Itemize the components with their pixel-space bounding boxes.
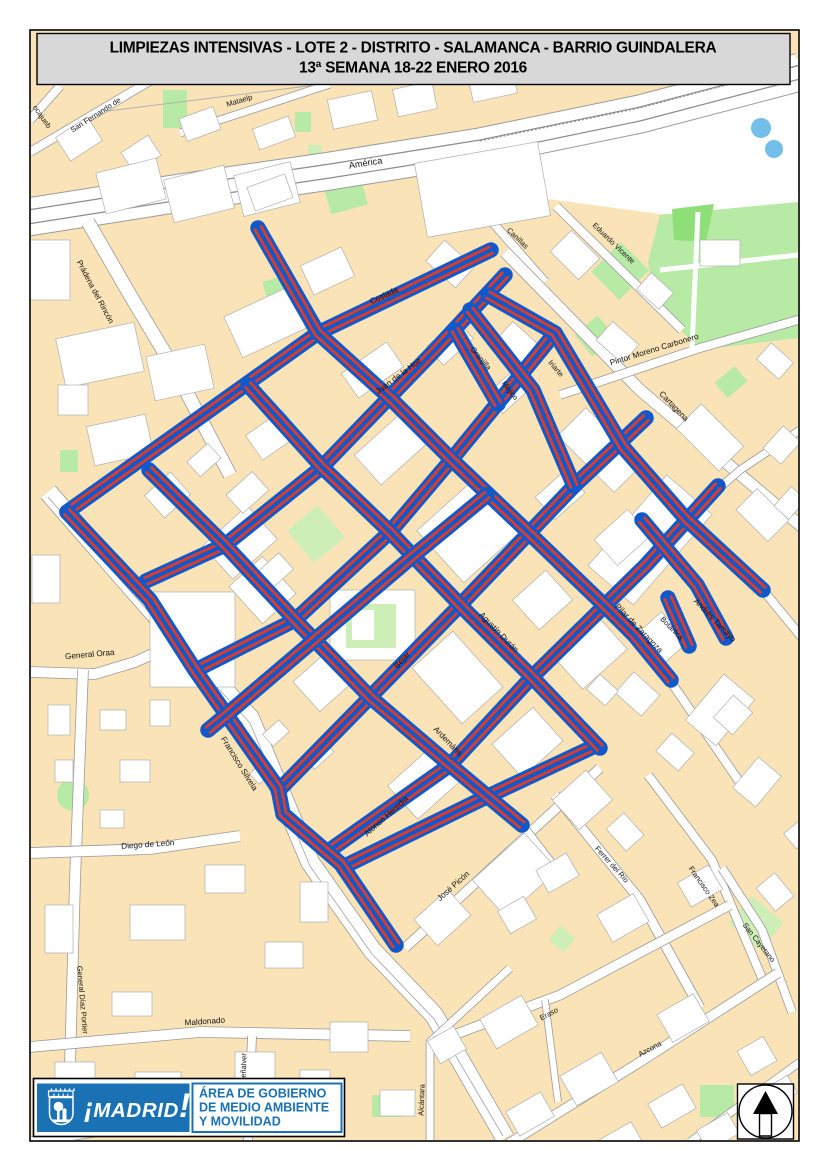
svg-text:LIMPIEZAS INTENSIVAS - LOTE 2: LIMPIEZAS INTENSIVAS - LOTE 2 - DISTRITO… [110,40,717,57]
svg-text:Y MOVILIDAD: Y MOVILIDAD [199,1115,281,1129]
svg-text:ÁREA DE GOBIERNO: ÁREA DE GOBIERNO [199,1086,327,1101]
svg-text:13ª SEMANA 18-22 ENERO 2016: 13ª SEMANA 18-22 ENERO 2016 [299,60,528,77]
svg-text:DE MEDIO AMBIENTE: DE MEDIO AMBIENTE [199,1101,329,1115]
svg-text:Alcántara: Alcántara [416,1083,426,1116]
